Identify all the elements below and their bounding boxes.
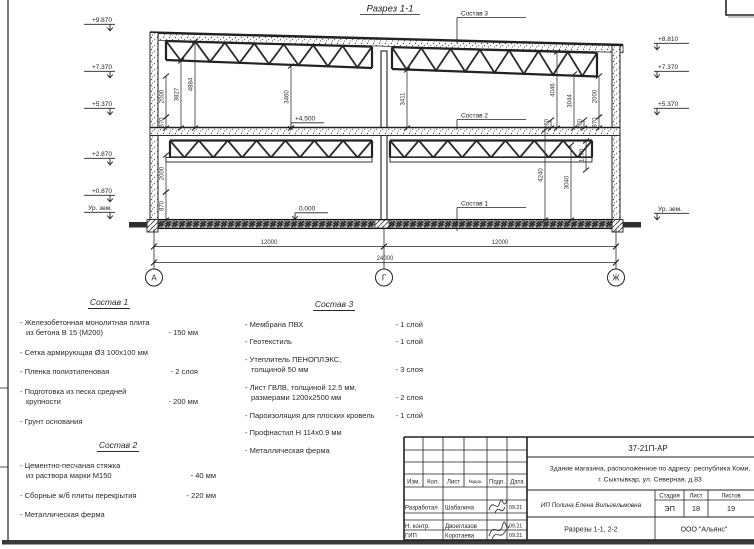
dim-vertical-left_2000: 2000 <box>160 74 170 120</box>
dim-vertical-bay1_3460: 3460 <box>285 64 295 131</box>
elevation-label: +0.870 <box>92 188 112 195</box>
elevation-mark: +7.370 <box>84 64 115 78</box>
tb-col-izm: Изм. <box>407 480 420 486</box>
elevation-label: +5.370 <box>92 101 112 108</box>
list-item: - Мембрана ПВХ- 1 слой <box>245 320 423 331</box>
list-2-title: Состав 2 <box>20 440 216 452</box>
elevation-label: 0.000 <box>299 206 316 213</box>
callout-sostav2: Состав 2 <box>461 113 488 120</box>
floor-truss-plate-right <box>390 158 592 163</box>
adjacent-sheet-corner <box>726 0 754 15</box>
dim-label: 1200 <box>580 148 586 162</box>
grid-axis-zh: Ж <box>612 274 620 283</box>
dim-label: 2000 <box>160 166 166 180</box>
floor-truss-plate-left <box>166 158 372 163</box>
composition-list-3: Состав 3 - Мембрана ПВХ- 1 слой - Геотек… <box>245 299 423 463</box>
dim-vertical-right_3044: 3044 <box>568 72 578 131</box>
callout-sostav3: Состав 3 <box>461 11 488 18</box>
floor-truss-bay2 <box>390 141 592 158</box>
section-title: Разрез 1-1 <box>366 4 413 15</box>
dim-vertical-right_2000: 2000 <box>593 74 603 120</box>
dim-label: 3827 <box>175 87 181 101</box>
dim-vertical-low_1200: 1200 <box>580 139 590 173</box>
list-item: - Грунт основания <box>20 417 198 428</box>
list-item: - Металлическая ферма <box>20 510 216 521</box>
title-block: Изм. Кол. Лист №док. Подп. Дата Разработ… <box>404 437 754 540</box>
dim-total: 24000 <box>377 256 394 262</box>
list-item: - Пленка полиэтиленовая- 2 слоя <box>20 367 198 378</box>
tb-document-code: 37-21П-АР <box>628 444 668 453</box>
elevation-mark: +5.370 <box>654 101 689 115</box>
tb-stage-value: ЭП <box>664 504 675 513</box>
elevation-mark: Ур. зем. <box>84 205 115 219</box>
dim-vertical-low_3040: 3040 <box>565 143 575 223</box>
grid-axis-a: А <box>151 274 157 283</box>
elevation-label: +9.870 <box>92 17 112 24</box>
tb-col-podp: Подп. <box>489 480 505 486</box>
composition-list-2: Состав 2 - Цементно-песчаная стяжка из р… <box>20 440 216 530</box>
signature-1 <box>489 522 509 539</box>
tb-sheet-value: 18 <box>692 504 700 513</box>
tb-role-2: ГИП <box>405 534 417 540</box>
dim-vertical-low_4240: 4240 <box>539 128 549 223</box>
tb-name-1: Двоеглазов <box>445 524 477 530</box>
list-item: - Подготовка из песка средней крупности-… <box>20 387 198 408</box>
tb-sheets-label: Листов <box>721 494 741 500</box>
dim-vertical-bay2_3411: 3411 <box>401 68 411 131</box>
ground-stub-right <box>623 222 641 228</box>
tb-col-data: Дата <box>510 480 524 486</box>
list-item: - Профнастил Н 114х0.9 мм <box>245 428 423 439</box>
tb-date-0: 09.21 <box>509 505 522 511</box>
tb-stage-label: Стадия <box>659 494 679 500</box>
composition-list-1: Состав 1 - Железобетонная монолитная пли… <box>20 297 198 436</box>
tb-designer: ИП Полина Елена Вильгельмовна <box>541 502 642 509</box>
foundation-left <box>147 220 158 233</box>
dim-label: 3460 <box>285 90 291 104</box>
list-item: - Металлическая ферма <box>245 446 423 457</box>
tb-object-line1: Здание магазина, расположенное по адресу… <box>550 465 751 473</box>
elevation-label: +4.500 <box>295 116 315 123</box>
roof-truss-bay1 <box>166 41 372 68</box>
list-3-title: Состав 3 <box>245 299 423 311</box>
callout-sostav1: Состав 1 <box>461 201 488 208</box>
tb-object-line2: г. Сыктывкар, ул. Северная, д.83 <box>598 477 702 484</box>
dim-vertical-left_4884: 4884 <box>189 39 199 131</box>
dim-vertical-left_3827: 3827 <box>175 59 185 131</box>
tb-name-0: Шабалина <box>445 506 475 512</box>
list-item: - Сборные ж/б плиты перекрытия- 220 мм <box>20 491 216 502</box>
dim-label: 870 <box>160 117 166 128</box>
grid-axes: А Г Ж <box>146 269 625 286</box>
tb-sheet-label: Лист <box>689 494 702 500</box>
bottom-dimensions: 12000 12000 24000 <box>151 229 619 269</box>
dim-label: 4884 <box>189 77 195 91</box>
elevation-mark: +2.870 <box>84 151 115 165</box>
dim-label: 260 <box>578 118 584 129</box>
roof-truss-bay2 <box>392 47 597 76</box>
tb-date-2: 09.21 <box>509 533 522 539</box>
elevation-mark: +9.870 <box>84 17 115 31</box>
grid-axis-g: Г <box>382 274 387 283</box>
list-item: - Геотекстиль- 1 слой <box>245 337 423 348</box>
dim-label: 4046 <box>551 83 557 97</box>
tb-date-1: 09.21 <box>509 524 522 530</box>
dim-label: 3411 <box>401 92 407 106</box>
dim-vertical-low_left_870: 870 <box>160 190 170 223</box>
elevation-label: Ур. зем. <box>88 205 112 212</box>
tb-doc-title: Разрезы 1-1, 2-2 <box>564 527 618 534</box>
ground-stub-left <box>129 222 147 228</box>
dim-label: 4240 <box>539 168 545 182</box>
elevation-label: +7.370 <box>92 64 112 71</box>
elevation-label: +8.810 <box>658 36 678 43</box>
tb-role-1: Н. контр. <box>405 524 430 530</box>
dim-label: 2000 <box>160 89 166 103</box>
floor-truss-bay1 <box>170 141 372 158</box>
dim-span1: 12000 <box>261 240 278 246</box>
dim-label: 3040 <box>565 175 571 189</box>
elevation-label: +2.870 <box>92 151 112 158</box>
dim-label: 870 <box>593 117 599 128</box>
elevation-label: +7.370 <box>658 64 678 71</box>
tb-role-0: Разработал <box>405 506 438 512</box>
list-item: - Сетка армирующая Ø3 100х100 мм <box>20 348 198 359</box>
tb-col-ndok: №док. <box>468 479 482 485</box>
list-item: - Цементно-песчаная стяжка из раствора м… <box>20 461 216 482</box>
elevation-mark: 0.000 <box>292 206 328 220</box>
elevation-label: +5.370 <box>658 101 678 108</box>
foundation-right <box>612 220 623 233</box>
signature-0 <box>489 500 507 513</box>
dim-vertical-right_4046: 4046 <box>551 50 561 131</box>
dim-span2: 12000 <box>492 240 509 246</box>
tb-col-kol: Кол. <box>427 480 439 486</box>
dim-label: 2000 <box>593 89 599 103</box>
elevation-mark: +0.870 <box>84 188 115 202</box>
elevation-mark: +7.370 <box>654 64 689 78</box>
dim-label: 870 <box>160 200 166 211</box>
elevation-mark: +8.810 <box>654 36 689 50</box>
elevation-mark: Ур. зем. <box>654 206 689 220</box>
drawing-sheet: Разрез 1-1 Состав 3 Состав 2 Состав <box>0 0 754 549</box>
elevation-label: Ур. зем. <box>658 206 682 213</box>
wall-left <box>150 33 158 221</box>
column-footing <box>375 220 389 228</box>
list-item: - Утеплитель ПЕНОПЛЭКС, толщиной 50 мм- … <box>245 355 423 376</box>
tb-sheets-value: 19 <box>727 504 735 513</box>
list-item: - Железобетонная монолитная плита из бет… <box>20 318 198 339</box>
building-section <box>129 33 641 243</box>
tb-col-list: Лист <box>447 480 460 486</box>
dim-label: 3044 <box>568 94 574 108</box>
list-1-title: Состав 1 <box>20 297 198 309</box>
list-item: - Лист ГВЛВ, толщиной 12.5 мм, размерами… <box>245 383 423 404</box>
elevation-mark: +5.370 <box>84 101 115 115</box>
tb-company: ООО "Альянс" <box>681 527 728 534</box>
list-item: - Пароизоляция для плоских кровель- 1 сл… <box>245 411 423 422</box>
tb-name-2: Коротаева <box>445 534 475 540</box>
